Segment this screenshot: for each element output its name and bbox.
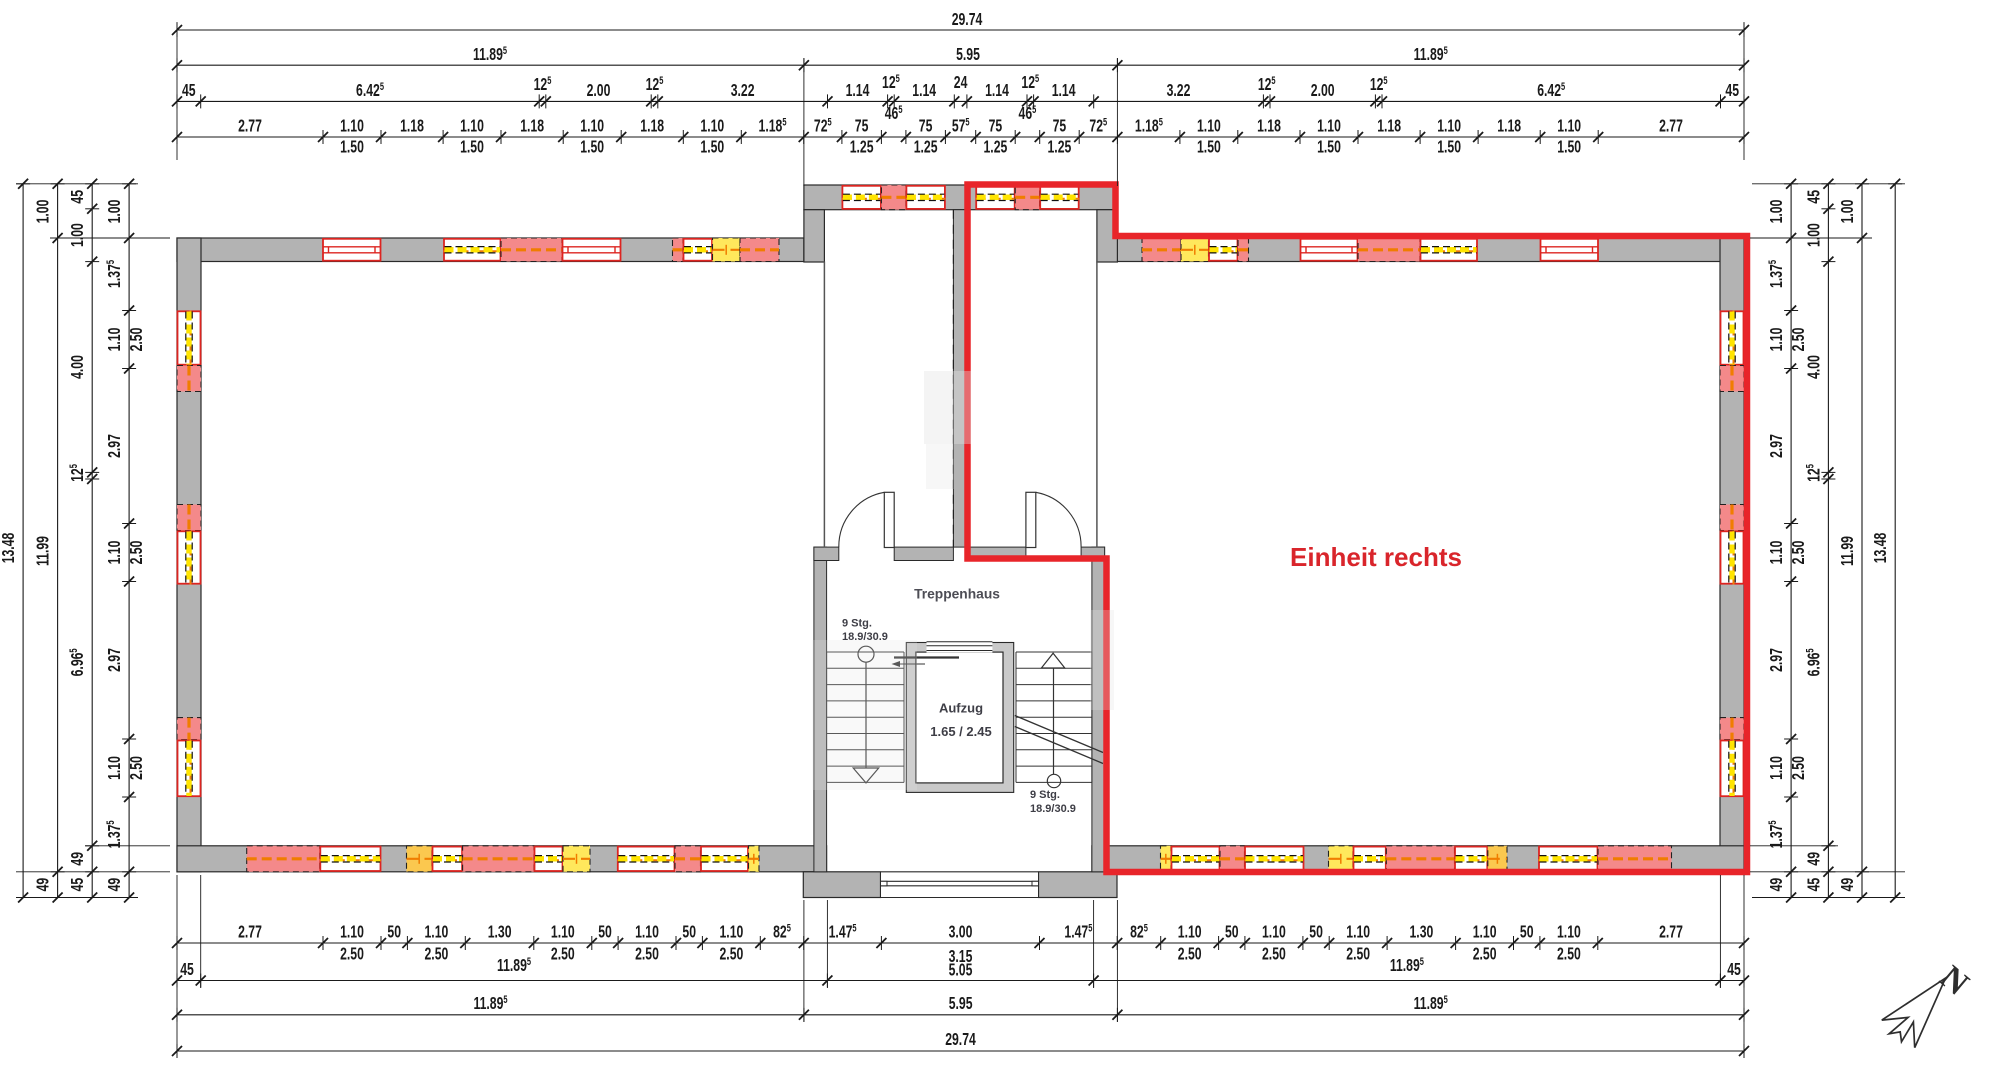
svg-text:1.50: 1.50 bbox=[1437, 137, 1461, 157]
svg-text:1.18: 1.18 bbox=[520, 116, 544, 136]
svg-text:6.965: 6.965 bbox=[1803, 648, 1824, 676]
svg-text:2.50: 2.50 bbox=[551, 944, 575, 964]
svg-text:75: 75 bbox=[1053, 116, 1067, 136]
svg-text:1.185: 1.185 bbox=[759, 115, 787, 136]
svg-text:6.425: 6.425 bbox=[356, 79, 384, 100]
svg-text:11.99: 11.99 bbox=[1838, 536, 1858, 566]
svg-text:2.50: 2.50 bbox=[635, 944, 659, 964]
svg-text:1.10: 1.10 bbox=[105, 328, 125, 352]
svg-text:75: 75 bbox=[919, 116, 933, 136]
svg-text:2.50: 2.50 bbox=[127, 756, 147, 780]
svg-text:2.50: 2.50 bbox=[1178, 944, 1202, 964]
svg-text:11.99: 11.99 bbox=[33, 536, 53, 566]
svg-text:1.14: 1.14 bbox=[985, 81, 1009, 101]
svg-text:13.48: 13.48 bbox=[0, 532, 19, 563]
svg-text:1.10: 1.10 bbox=[1557, 116, 1581, 136]
svg-text:50: 50 bbox=[387, 922, 401, 942]
svg-text:Aufzug: Aufzug bbox=[939, 701, 983, 716]
svg-text:9 Stg.: 9 Stg. bbox=[1030, 789, 1060, 801]
svg-text:2.00: 2.00 bbox=[1311, 81, 1335, 101]
svg-text:1.10: 1.10 bbox=[460, 116, 484, 136]
svg-text:11.895: 11.895 bbox=[1390, 954, 1424, 975]
svg-text:1.10: 1.10 bbox=[1437, 116, 1461, 136]
svg-text:2.50: 2.50 bbox=[127, 541, 147, 565]
svg-text:4.00: 4.00 bbox=[1804, 355, 1824, 379]
svg-text:1.14: 1.14 bbox=[912, 81, 936, 101]
svg-text:1.10: 1.10 bbox=[1178, 922, 1202, 942]
svg-text:5.95: 5.95 bbox=[949, 994, 973, 1014]
svg-text:4.00: 4.00 bbox=[68, 355, 88, 379]
svg-text:75: 75 bbox=[989, 116, 1003, 136]
svg-text:1.10: 1.10 bbox=[1767, 328, 1787, 352]
svg-text:1.10: 1.10 bbox=[1473, 922, 1497, 942]
svg-text:1.10: 1.10 bbox=[1197, 116, 1221, 136]
svg-text:Einheit rechts: Einheit rechts bbox=[1290, 542, 1462, 572]
svg-text:2.77: 2.77 bbox=[1659, 922, 1683, 942]
svg-text:1.00: 1.00 bbox=[105, 200, 125, 224]
svg-text:11.895: 11.895 bbox=[1414, 992, 1448, 1013]
svg-text:2.50: 2.50 bbox=[1789, 328, 1809, 352]
svg-text:2.50: 2.50 bbox=[719, 944, 743, 964]
svg-text:2.50: 2.50 bbox=[340, 944, 364, 964]
svg-text:1.10: 1.10 bbox=[1262, 922, 1286, 942]
svg-text:49: 49 bbox=[1838, 878, 1858, 892]
svg-text:1.14: 1.14 bbox=[1052, 81, 1076, 101]
svg-text:2.97: 2.97 bbox=[105, 434, 125, 458]
svg-text:2.50: 2.50 bbox=[1473, 944, 1497, 964]
svg-text:1.00: 1.00 bbox=[1767, 200, 1787, 224]
svg-text:1.50: 1.50 bbox=[460, 137, 484, 157]
svg-text:1.50: 1.50 bbox=[580, 137, 604, 157]
svg-text:1.375: 1.375 bbox=[104, 260, 125, 288]
svg-text:3.00: 3.00 bbox=[949, 922, 973, 942]
svg-text:45: 45 bbox=[68, 877, 88, 891]
svg-text:2.97: 2.97 bbox=[105, 648, 125, 672]
svg-text:1.10: 1.10 bbox=[635, 922, 659, 942]
svg-text:5.05: 5.05 bbox=[949, 960, 973, 980]
svg-text:2.77: 2.77 bbox=[1659, 116, 1683, 136]
svg-text:2.50: 2.50 bbox=[1557, 944, 1581, 964]
svg-text:49: 49 bbox=[33, 878, 53, 892]
svg-text:2.50: 2.50 bbox=[1789, 756, 1809, 780]
svg-text:2.97: 2.97 bbox=[1767, 434, 1787, 458]
svg-text:1.18: 1.18 bbox=[1377, 116, 1401, 136]
svg-text:2.77: 2.77 bbox=[238, 116, 262, 136]
svg-text:29.74: 29.74 bbox=[945, 1030, 976, 1050]
svg-text:50: 50 bbox=[682, 922, 696, 942]
svg-text:2.77: 2.77 bbox=[238, 922, 262, 942]
svg-text:1.14: 1.14 bbox=[846, 81, 870, 101]
svg-text:1.25: 1.25 bbox=[850, 137, 874, 157]
svg-text:1.00: 1.00 bbox=[1838, 200, 1858, 224]
svg-text:50: 50 bbox=[1225, 922, 1239, 942]
svg-text:1.00: 1.00 bbox=[68, 223, 88, 247]
svg-text:1.10: 1.10 bbox=[580, 116, 604, 136]
svg-text:1.18: 1.18 bbox=[400, 116, 424, 136]
svg-text:1.00: 1.00 bbox=[33, 200, 53, 224]
svg-text:2.97: 2.97 bbox=[1767, 648, 1787, 672]
svg-text:1.185: 1.185 bbox=[1135, 115, 1163, 136]
svg-text:1.10: 1.10 bbox=[719, 922, 743, 942]
svg-text:1.30: 1.30 bbox=[1409, 922, 1433, 942]
svg-text:45: 45 bbox=[182, 81, 196, 101]
svg-text:1.10: 1.10 bbox=[700, 116, 724, 136]
svg-text:1.475: 1.475 bbox=[829, 921, 857, 942]
svg-text:50: 50 bbox=[598, 922, 612, 942]
svg-text:1.10: 1.10 bbox=[105, 756, 125, 780]
svg-text:1.10: 1.10 bbox=[105, 541, 125, 565]
svg-text:1.25: 1.25 bbox=[1047, 137, 1071, 157]
svg-text:2.50: 2.50 bbox=[1789, 541, 1809, 565]
svg-text:45: 45 bbox=[1804, 877, 1824, 891]
svg-text:2.00: 2.00 bbox=[587, 81, 611, 101]
svg-text:1.50: 1.50 bbox=[700, 137, 724, 157]
svg-text:13.48: 13.48 bbox=[1871, 532, 1891, 563]
svg-text:45: 45 bbox=[68, 190, 88, 204]
svg-text:49: 49 bbox=[1804, 852, 1824, 866]
svg-text:50: 50 bbox=[1520, 922, 1534, 942]
svg-text:1.50: 1.50 bbox=[1197, 137, 1221, 157]
svg-text:1.375: 1.375 bbox=[1766, 820, 1787, 848]
svg-text:11.895: 11.895 bbox=[473, 992, 507, 1013]
svg-text:18.9/30.9: 18.9/30.9 bbox=[1030, 803, 1076, 815]
svg-text:1.375: 1.375 bbox=[104, 820, 125, 848]
svg-text:3.22: 3.22 bbox=[1167, 81, 1191, 101]
svg-text:6.965: 6.965 bbox=[67, 648, 88, 676]
svg-text:5.95: 5.95 bbox=[956, 45, 980, 65]
svg-text:45: 45 bbox=[1725, 81, 1739, 101]
svg-text:1.10: 1.10 bbox=[1557, 922, 1581, 942]
svg-text:1.65 / 2.45: 1.65 / 2.45 bbox=[930, 724, 991, 739]
svg-text:50: 50 bbox=[1309, 922, 1323, 942]
svg-text:11.895: 11.895 bbox=[497, 954, 531, 975]
svg-text:1.10: 1.10 bbox=[551, 922, 575, 942]
svg-text:1.30: 1.30 bbox=[488, 922, 512, 942]
svg-text:11.895: 11.895 bbox=[1414, 43, 1448, 64]
svg-text:2.50: 2.50 bbox=[424, 944, 448, 964]
svg-text:1.18: 1.18 bbox=[1257, 116, 1281, 136]
svg-text:1.10: 1.10 bbox=[424, 922, 448, 942]
svg-text:9 Stg.: 9 Stg. bbox=[842, 618, 872, 630]
svg-text:1.10: 1.10 bbox=[1767, 541, 1787, 565]
svg-text:1.50: 1.50 bbox=[1557, 137, 1581, 157]
svg-text:1.25: 1.25 bbox=[914, 137, 938, 157]
svg-text:1.50: 1.50 bbox=[340, 137, 364, 157]
svg-text:2.50: 2.50 bbox=[1346, 944, 1370, 964]
svg-text:49: 49 bbox=[68, 852, 88, 866]
svg-text:1.50: 1.50 bbox=[1317, 137, 1341, 157]
svg-text:1.18: 1.18 bbox=[640, 116, 664, 136]
svg-text:1.10: 1.10 bbox=[1767, 756, 1787, 780]
svg-text:6.425: 6.425 bbox=[1537, 79, 1565, 100]
svg-text:1.475: 1.475 bbox=[1064, 921, 1092, 942]
svg-text:1.10: 1.10 bbox=[340, 116, 364, 136]
svg-text:49: 49 bbox=[105, 878, 125, 892]
svg-text:29.74: 29.74 bbox=[952, 10, 983, 30]
svg-text:1.18: 1.18 bbox=[1497, 116, 1521, 136]
svg-text:1.25: 1.25 bbox=[983, 137, 1007, 157]
svg-text:Treppenhaus: Treppenhaus bbox=[914, 587, 1000, 602]
svg-text:75: 75 bbox=[855, 116, 869, 136]
svg-text:1.10: 1.10 bbox=[1317, 116, 1341, 136]
svg-text:1.375: 1.375 bbox=[1766, 260, 1787, 288]
svg-text:2.50: 2.50 bbox=[1262, 944, 1286, 964]
svg-text:2.50: 2.50 bbox=[127, 328, 147, 352]
svg-text:49: 49 bbox=[1767, 878, 1787, 892]
svg-text:45: 45 bbox=[1804, 190, 1824, 204]
svg-text:3.22: 3.22 bbox=[731, 81, 755, 101]
svg-text:45: 45 bbox=[180, 960, 194, 980]
svg-text:24: 24 bbox=[954, 73, 968, 93]
svg-text:11.895: 11.895 bbox=[473, 43, 507, 64]
svg-text:45: 45 bbox=[1727, 960, 1741, 980]
svg-text:1.10: 1.10 bbox=[340, 922, 364, 942]
svg-text:1.10: 1.10 bbox=[1346, 922, 1370, 942]
svg-text:1.00: 1.00 bbox=[1804, 223, 1824, 247]
